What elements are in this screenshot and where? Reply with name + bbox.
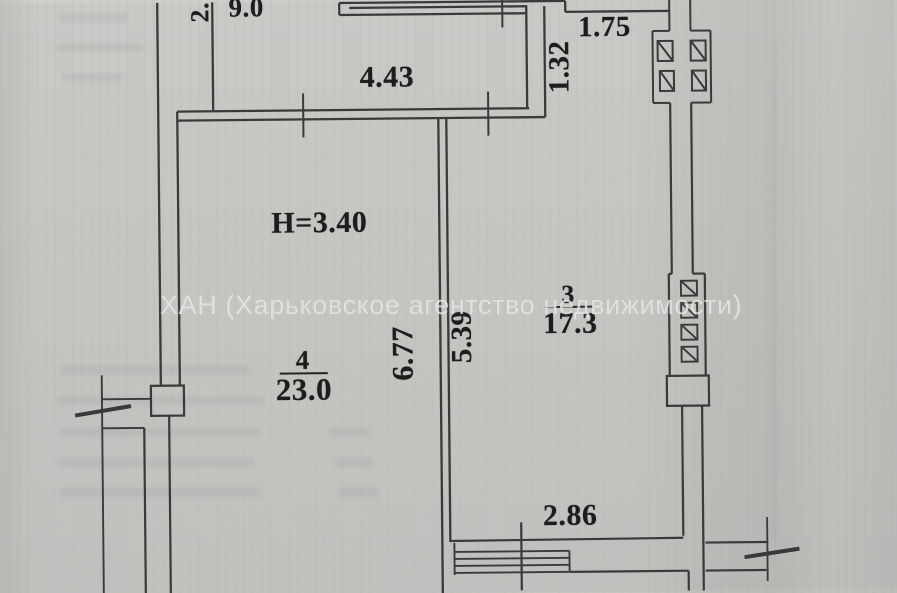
dim-label-room4-length: 6.77 — [388, 326, 419, 381]
ceiling-height-label: H=3.40 — [271, 208, 367, 239]
dim-label-window-wall-width: 2.86 — [543, 501, 598, 532]
floor-plan-scan: 2. 9.0 4.43 1.75 1.32 H=3.40 6.77 5.39 2… — [0, 0, 897, 593]
dim-label-top-left-vertical: 2. — [187, 2, 213, 23]
watermark: ХАН (Харьковское агентство недвижимости) — [160, 290, 742, 321]
dim-label-niche-width: 1.75 — [578, 13, 631, 43]
room4-area: 23.0 — [276, 374, 333, 406]
room4-number: 4 — [295, 347, 309, 374]
dim-label-top-room-width: 9.0 — [228, 0, 264, 22]
dim-label-niche-depth: 1.32 — [545, 40, 575, 93]
dim-label-room4-top-width: 4.43 — [360, 62, 415, 93]
